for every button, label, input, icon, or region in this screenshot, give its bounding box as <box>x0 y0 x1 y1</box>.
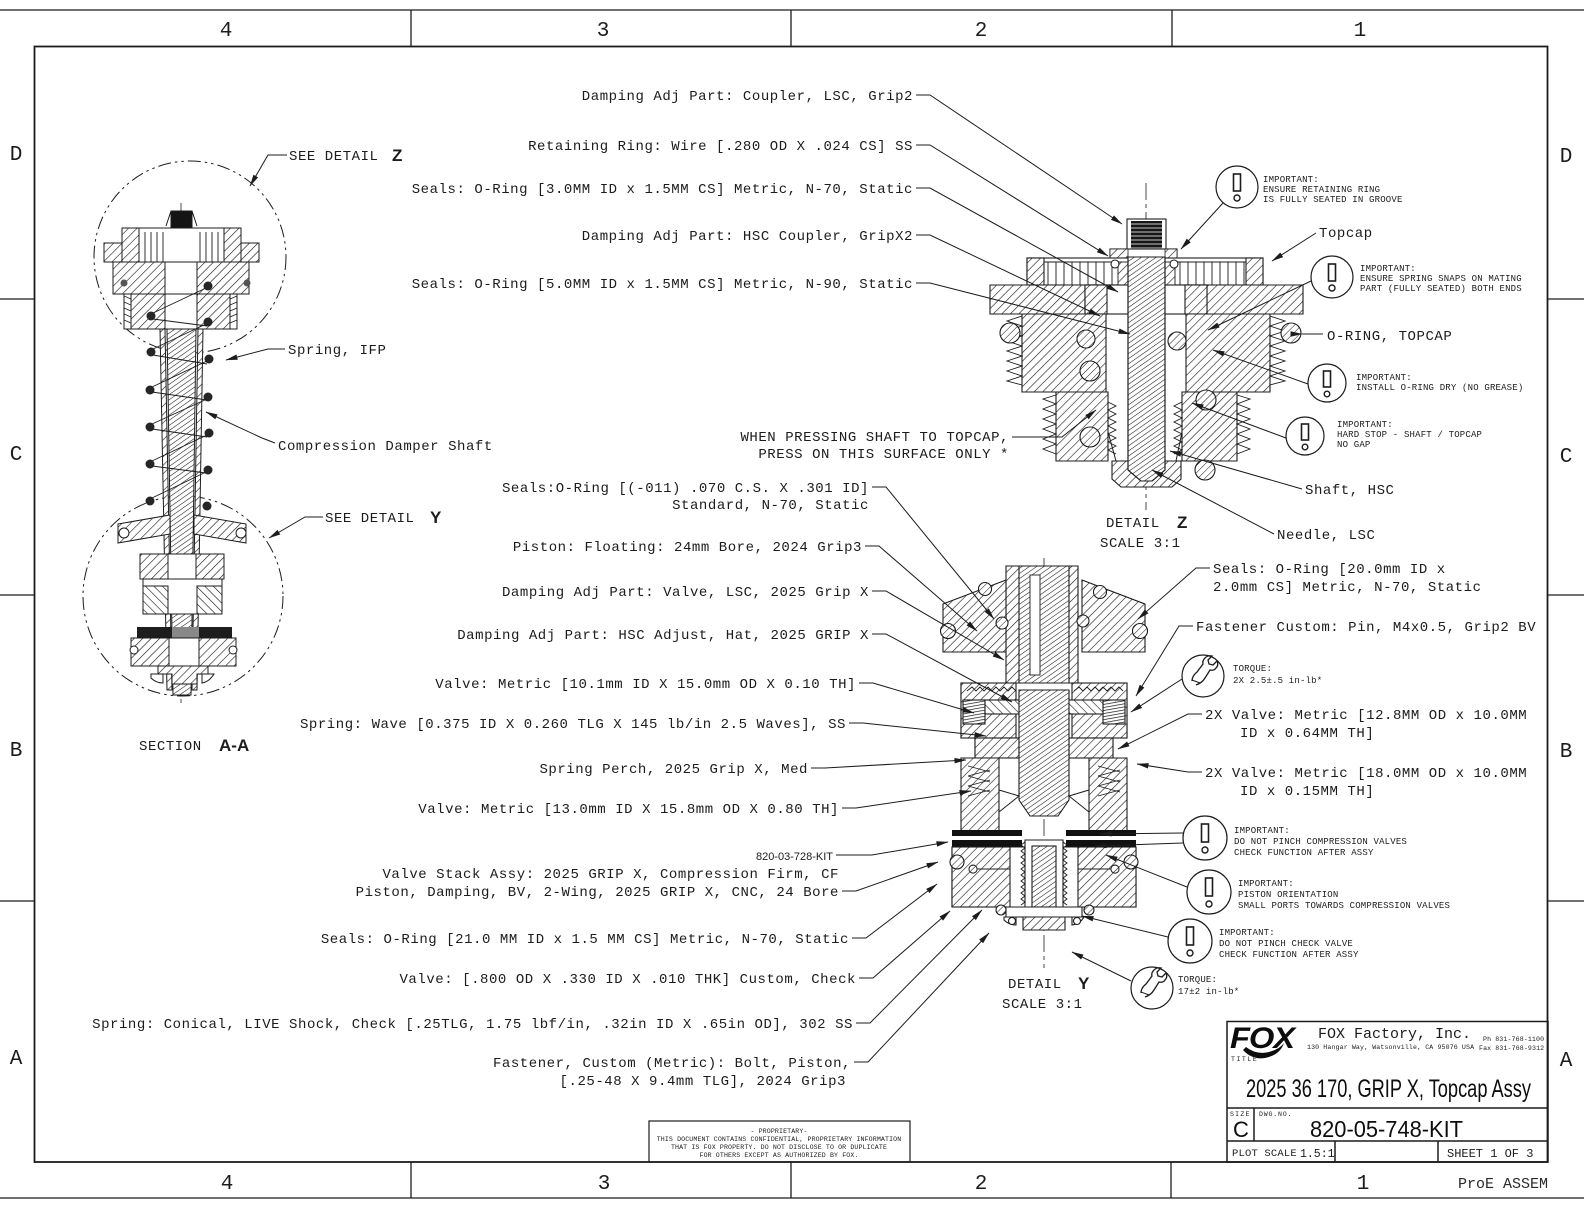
svg-text:Spring Perch, 2025 Grip X, Med: Spring Perch, 2025 Grip X, Med <box>539 762 808 778</box>
svg-text:TITLE: TITLE <box>1231 1056 1258 1063</box>
svg-text:IMPORTANT:: IMPORTANT: <box>1234 826 1290 836</box>
svg-text:WHEN PRESSING SHAFT TO TOPCAP,: WHEN PRESSING SHAFT TO TOPCAP, <box>740 430 1009 446</box>
svg-text:IS FULLY SEATED IN GROOVE: IS FULLY SEATED IN GROOVE <box>1263 195 1403 205</box>
svg-text:C: C <box>10 444 23 467</box>
svg-text:1: 1 <box>1357 1173 1370 1196</box>
svg-text:4: 4 <box>221 1173 234 1196</box>
svg-text:17±2 in-lb*: 17±2 in-lb* <box>1178 987 1239 997</box>
svg-text:SMALL PORTS TOWARDS COMPRESSIO: SMALL PORTS TOWARDS COMPRESSION VALVES <box>1238 901 1450 911</box>
svg-text:Ph 831-768-1100: Ph 831-768-1100 <box>1483 1036 1544 1043</box>
svg-text:IMPORTANT:: IMPORTANT: <box>1356 373 1412 383</box>
svg-text:CHECK FUNCTION AFTER ASSY: CHECK FUNCTION AFTER ASSY <box>1219 950 1359 960</box>
svg-text:Z: Z <box>392 146 402 165</box>
svg-text:4: 4 <box>220 20 233 43</box>
svg-text:Z: Z <box>1177 513 1187 532</box>
svg-text:SEE DETAIL: SEE DETAIL <box>325 511 415 527</box>
svg-text:A: A <box>1560 1050 1573 1073</box>
svg-text:130 Hangar Way, Watsonville, C: 130 Hangar Way, Watsonville, CA 95076 US… <box>1307 1044 1474 1051</box>
svg-text:Fax 831-768-9312: Fax 831-768-9312 <box>1479 1045 1544 1052</box>
svg-text:A: A <box>10 1048 23 1071</box>
svg-text:D: D <box>1560 146 1573 169</box>
svg-text:C: C <box>1233 1117 1249 1142</box>
svg-text:Needle, LSC: Needle, LSC <box>1277 528 1375 544</box>
svg-text:FOX: FOX <box>1230 1022 1297 1055</box>
svg-text:IMPORTANT:: IMPORTANT: <box>1238 879 1294 889</box>
svg-text:DETAIL: DETAIL <box>1106 516 1160 532</box>
svg-text:Shaft, HSC: Shaft, HSC <box>1305 483 1395 499</box>
svg-text:B: B <box>1560 741 1573 764</box>
svg-text:SECTION: SECTION <box>139 739 202 755</box>
svg-text:820-03-728-KIT: 820-03-728-KIT <box>756 851 833 863</box>
svg-text:820-05-748-KIT: 820-05-748-KIT <box>1310 1116 1463 1142</box>
svg-text:Damping Adj Part: Coupler, LSC: Damping Adj Part: Coupler, LSC, Grip2 <box>582 89 913 105</box>
svg-text:D: D <box>10 144 23 167</box>
svg-text:Seals:O-Ring [(-011) .070 C.S.: Seals:O-Ring [(-011) .070 C.S. X .301 ID… <box>502 481 869 497</box>
svg-text:Seals: O-Ring [21.0 MM ID x 1.: Seals: O-Ring [21.0 MM ID x 1.5 MM CS] M… <box>321 932 849 948</box>
svg-text:Retaining Ring: Wire [.280 OD: Retaining Ring: Wire [.280 OD X .024 CS]… <box>528 139 913 155</box>
svg-text:Seals: O-Ring [3.0MM ID x 1.5M: Seals: O-Ring [3.0MM ID x 1.5MM CS] Metr… <box>412 182 913 198</box>
svg-text:CHECK FUNCTION AFTER ASSY: CHECK FUNCTION AFTER ASSY <box>1234 848 1374 858</box>
svg-text:IMPORTANT:: IMPORTANT: <box>1219 928 1275 938</box>
svg-text:2X Valve: Metric [18.0MM OD x: 2X Valve: Metric [18.0MM OD x 10.0MM <box>1205 766 1527 782</box>
svg-text:DWG.NO.: DWG.NO. <box>1259 1111 1292 1118</box>
svg-text:TORQUE:: TORQUE: <box>1178 975 1217 985</box>
svg-text:PRESS ON THIS SURFACE ONLY *: PRESS ON THIS SURFACE ONLY * <box>758 447 1009 463</box>
svg-text:C: C <box>1560 446 1573 469</box>
svg-text:ProE ASSEM: ProE ASSEM <box>1458 1176 1548 1193</box>
svg-text:O-RING, TOPCAP: O-RING, TOPCAP <box>1327 329 1452 345</box>
svg-text:Valve: [.800 OD X .330 ID X .0: Valve: [.800 OD X .330 ID X .010 THK] Cu… <box>399 972 856 988</box>
svg-text:Valve Stack Assy: 2025 GRIP X,: Valve Stack Assy: 2025 GRIP X, Compressi… <box>382 867 839 883</box>
svg-text:Topcap: Topcap <box>1319 226 1373 242</box>
svg-text:Piston, Damping, BV, 2-Wing, 2: Piston, Damping, BV, 2-Wing, 2025 GRIP X… <box>356 885 839 901</box>
svg-text:PART (FULLY SEATED) BOTH ENDS: PART (FULLY SEATED) BOTH ENDS <box>1360 284 1522 294</box>
svg-text:ID x 0.64MM TH]: ID x 0.64MM TH] <box>1240 726 1374 742</box>
svg-text:Spring: Wave [0.375 ID X 0.260: Spring: Wave [0.375 ID X 0.260 TLG X 145… <box>300 717 846 733</box>
svg-text:Piston: Floating: 24mm Bore, 2: Piston: Floating: 24mm Bore, 2024 Grip3 <box>513 540 862 556</box>
svg-text:Y: Y <box>1078 974 1090 993</box>
svg-text:IMPORTANT:: IMPORTANT: <box>1337 420 1393 430</box>
svg-text:THAT IS FOX PROPERTY. DO NOT: THAT IS FOX PROPERTY. DO NOT DISCLOSE TO… <box>671 1144 887 1151</box>
svg-text:B: B <box>10 740 23 763</box>
svg-text:IMPORTANT:: IMPORTANT: <box>1263 175 1319 185</box>
svg-text:Spring, IFP: Spring, IFP <box>288 343 386 359</box>
svg-text:2: 2 <box>975 1173 988 1196</box>
svg-text:Damping Adj Part: HSC Coupler,: Damping Adj Part: HSC Coupler, GripX2 <box>582 229 913 245</box>
svg-text:INSTALL O-RING DRY (NO GREASE): INSTALL O-RING DRY (NO GREASE) <box>1356 383 1523 393</box>
svg-text:Damping Adj Part: Valve, LSC,: Damping Adj Part: Valve, LSC, 2025 Grip … <box>502 585 869 601</box>
svg-text:ID x 0.15MM TH]: ID x 0.15MM TH] <box>1240 784 1374 800</box>
svg-text:Compression Damper Shaft: Compression Damper Shaft <box>278 439 493 455</box>
svg-text:1.5:1: 1.5:1 <box>1300 1148 1335 1161</box>
svg-text:2: 2 <box>975 20 988 43</box>
svg-text:2.0mm CS] Metric, N-70, Static: 2.0mm CS] Metric, N-70, Static <box>1213 580 1482 596</box>
svg-text:[.25-48 X 9.4mm TLG], 2024 Gri: [.25-48 X 9.4mm TLG], 2024 Grip3 <box>560 1074 846 1090</box>
svg-text:HARD STOP - SHAFT / TOPCAP: HARD STOP - SHAFT / TOPCAP <box>1337 430 1482 440</box>
svg-text:SCALE 3:1: SCALE 3:1 <box>1100 536 1181 552</box>
svg-text:FOR OTHERS EXCEPT AS AUTHORIZE: FOR OTHERS EXCEPT AS AUTHORIZED BY FOX. <box>700 1152 859 1159</box>
svg-text:2X Valve: Metric [12.8MM OD x: 2X Valve: Metric [12.8MM OD x 10.0MM <box>1205 708 1527 724</box>
svg-text:IMPORTANT:: IMPORTANT: <box>1360 264 1416 274</box>
svg-text:FOX Factory, Inc.: FOX Factory, Inc. <box>1318 1026 1471 1043</box>
svg-text:NO GAP: NO GAP <box>1337 440 1371 450</box>
svg-text:2025 36 170, GRIP X, Topcap As: 2025 36 170, GRIP X, Topcap Assy <box>1246 1075 1531 1103</box>
svg-text:Valve: Metric [10.1mm ID X 15.: Valve: Metric [10.1mm ID X 15.0mm OD X 0… <box>435 677 856 693</box>
svg-text:Fastener, Custom (Metric): Bol: Fastener, Custom (Metric): Bolt, Piston, <box>493 1056 851 1072</box>
svg-text:Damping Adj Part: HSC Adjust,: Damping Adj Part: HSC Adjust, Hat, 2025 … <box>457 628 869 644</box>
svg-text:Fastener Custom: Pin, M4x0.5,: Fastener Custom: Pin, M4x0.5, Grip2 BV <box>1196 620 1536 636</box>
svg-text:DO NOT PINCH COMPRESSION VALVE: DO NOT PINCH COMPRESSION VALVES <box>1234 837 1407 847</box>
svg-text:Seals: O-Ring [5.0MM ID x 1.5M: Seals: O-Ring [5.0MM ID x 1.5MM CS] Metr… <box>412 277 913 293</box>
svg-text:- PROPRIETARY-: - PROPRIETARY- <box>750 1128 807 1135</box>
svg-text:3: 3 <box>597 20 610 43</box>
svg-text:2X 2.5±.5 in-lb*: 2X 2.5±.5 in-lb* <box>1233 676 1322 686</box>
svg-text:A-A: A-A <box>219 736 249 755</box>
svg-text:ENSURE SPRING SNAPS ON MATING: ENSURE SPRING SNAPS ON MATING <box>1360 274 1522 284</box>
svg-text:THIS DOCUMENT CONTAINS CONFIDE: THIS DOCUMENT CONTAINS CONFIDENTIAL, PRO… <box>657 1136 902 1143</box>
svg-text:PISTON ORIENTATION: PISTON ORIENTATION <box>1238 890 1338 900</box>
svg-text:ENSURE RETAINING RING: ENSURE RETAINING RING <box>1263 185 1380 195</box>
svg-text:Standard, N-70, Static: Standard, N-70, Static <box>672 498 869 514</box>
svg-text:3: 3 <box>598 1173 611 1196</box>
svg-text:PLOT SCALE: PLOT SCALE <box>1232 1148 1297 1160</box>
svg-text:Y: Y <box>430 508 442 527</box>
svg-text:SCALE 3:1: SCALE 3:1 <box>1002 997 1083 1013</box>
svg-text:DETAIL: DETAIL <box>1008 977 1062 993</box>
svg-text:DO NOT PINCH CHECK VALVE: DO NOT PINCH CHECK VALVE <box>1219 939 1353 949</box>
svg-text:Seals: O-Ring [20.0mm ID x: Seals: O-Ring [20.0mm ID x <box>1213 562 1446 578</box>
svg-text:Valve: Metric [13.0mm ID X 15.: Valve: Metric [13.0mm ID X 15.8mm OD X 0… <box>418 802 839 818</box>
svg-text:SHEET 1 OF 3: SHEET 1 OF 3 <box>1447 1147 1533 1161</box>
svg-text:TORQUE:: TORQUE: <box>1233 664 1272 674</box>
svg-text:SEE DETAIL: SEE DETAIL <box>289 149 379 165</box>
svg-text:Spring: Conical, LIVE Shock, C: Spring: Conical, LIVE Shock, Check [.25T… <box>92 1017 853 1033</box>
svg-text:1: 1 <box>1354 20 1367 43</box>
